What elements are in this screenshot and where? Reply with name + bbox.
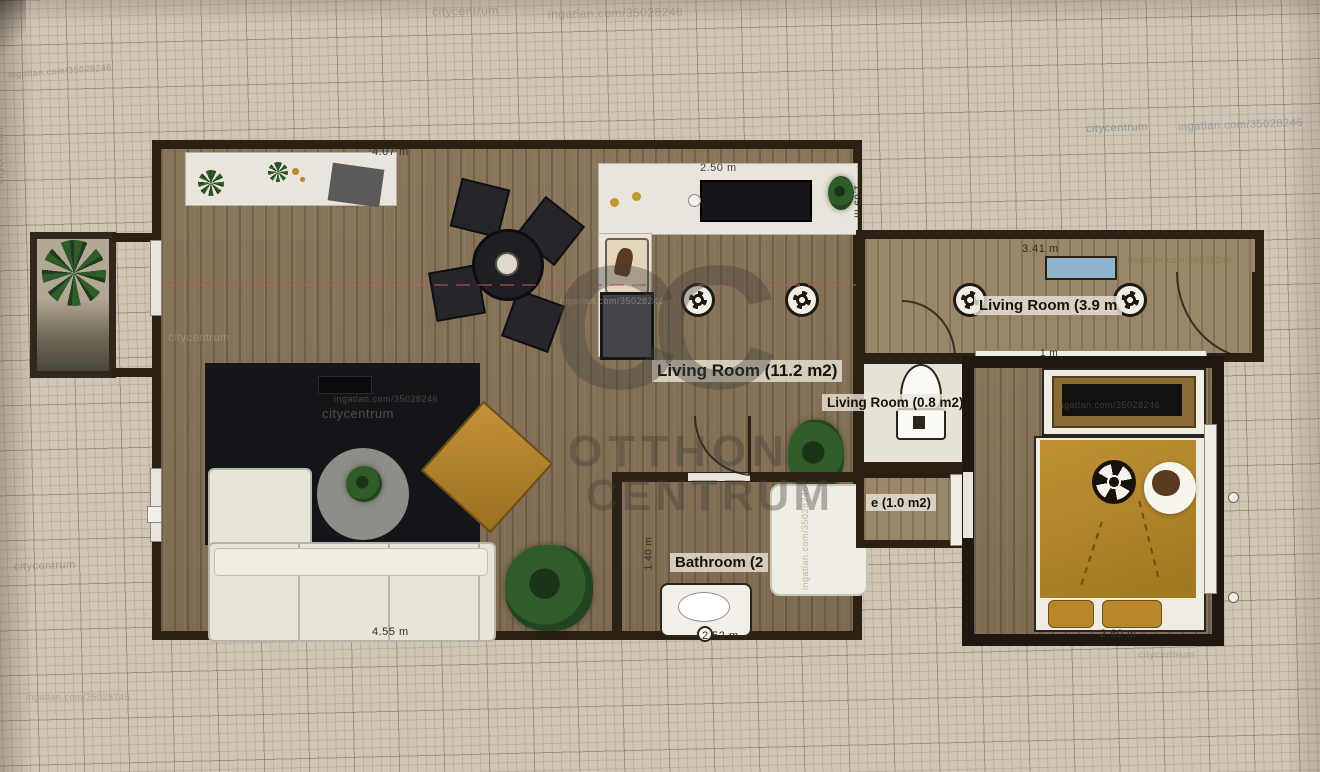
right-room-door-leaf [1252,272,1255,358]
bathroom-sink-basin [678,592,730,622]
watermark-rug-1: ingatlan.com/35028246 [334,394,438,404]
photo-marker-blob [1152,470,1180,496]
sofa-backrest [214,548,488,576]
counter-mat [328,163,385,208]
bathroom-label: Bathroom (2 [670,553,768,572]
kitchen-plant-icon [828,176,854,210]
dim-right-room: 3.41 m [1022,243,1059,255]
stove [700,180,812,222]
dining-table-plate [495,252,519,276]
watermark-top: citycentrum [432,3,499,18]
stove-knob [688,194,701,207]
watermark-logo-initials: CC [552,240,750,416]
bed-pillow-2 [1102,600,1162,628]
fern-plant-icon [505,545,593,631]
living-room-small-label: Living Room (3.9 m [974,296,1122,315]
watermark-topright: citycentrum [1086,121,1148,135]
watermark-rug-2: citycentrum [322,406,394,421]
watermark-top2: ingatlan.com/35028246 [548,5,683,21]
balcony-dimension: 1.02 m [58,231,92,242]
photo-corner-shadow [0,0,26,60]
floorplan-photo: citycentrum ingatlan.com/35028246 cityce… [0,0,1320,772]
dim-bathroom-width: 2.52 m [702,630,739,642]
watermark-bottomleft2: ingatlan.com/35028246 [26,692,130,702]
watermark-logo-word2: CENTRUM [586,474,834,518]
watermark-logo-word1: OTTHON [568,430,790,474]
rug-plant-icon [346,466,382,502]
bedroom-right-door [1204,424,1217,594]
soundbar [318,376,372,394]
dim-top-left: 4.07 m [372,146,409,158]
watermark-bottomright: citycentrum [1138,650,1195,661]
watermark-bottomleft: citycentrum [14,559,76,573]
kitchen-item-1 [610,198,619,207]
bedroom-door-gap [963,472,973,538]
watermark-wall: citycentrum [168,332,230,344]
counter-decor-dot-1 [292,168,299,175]
counter-plant-icon-2 [268,162,288,182]
dim-bathroom-height: 1.40 m [643,537,654,571]
kitchen-item-2 [632,192,641,201]
wc-label: Living Room (0.8 m2) [822,394,969,411]
radiator-dot-1 [1228,492,1239,503]
counter-decor-dot-2 [300,177,305,182]
watermark-left2: citycentrum [0,127,6,184]
radiator-dot-2 [1228,592,1239,603]
counter-plant-icon-1 [198,170,224,196]
watermark-bed: ingatlan.com/35028246 [1056,400,1160,410]
window-left-bottom [150,468,162,542]
bedroom-fan-icon [1092,460,1136,504]
watermark-green: ingatlan.com/35028246 [1128,255,1232,265]
window-handle [147,506,162,523]
window-left-top [150,240,162,316]
toilet-flush [913,416,925,429]
dim-bottom-left: 4.55 m [372,626,409,638]
bed-pillow-1 [1048,600,1094,628]
dim-kitchen: 2.50 m [700,162,737,174]
balcony-wall-bottom [112,368,156,377]
window-radiator-blue [1045,256,1117,280]
balcony-plant-icon [42,240,106,306]
dim-bedroom: 2.60 m [1100,628,1137,640]
dim-kitchen-depth: 1.69 m [851,185,862,219]
ceiling-light-icon-2 [785,283,819,317]
hall-label: e (1.0 m2) [866,494,936,511]
